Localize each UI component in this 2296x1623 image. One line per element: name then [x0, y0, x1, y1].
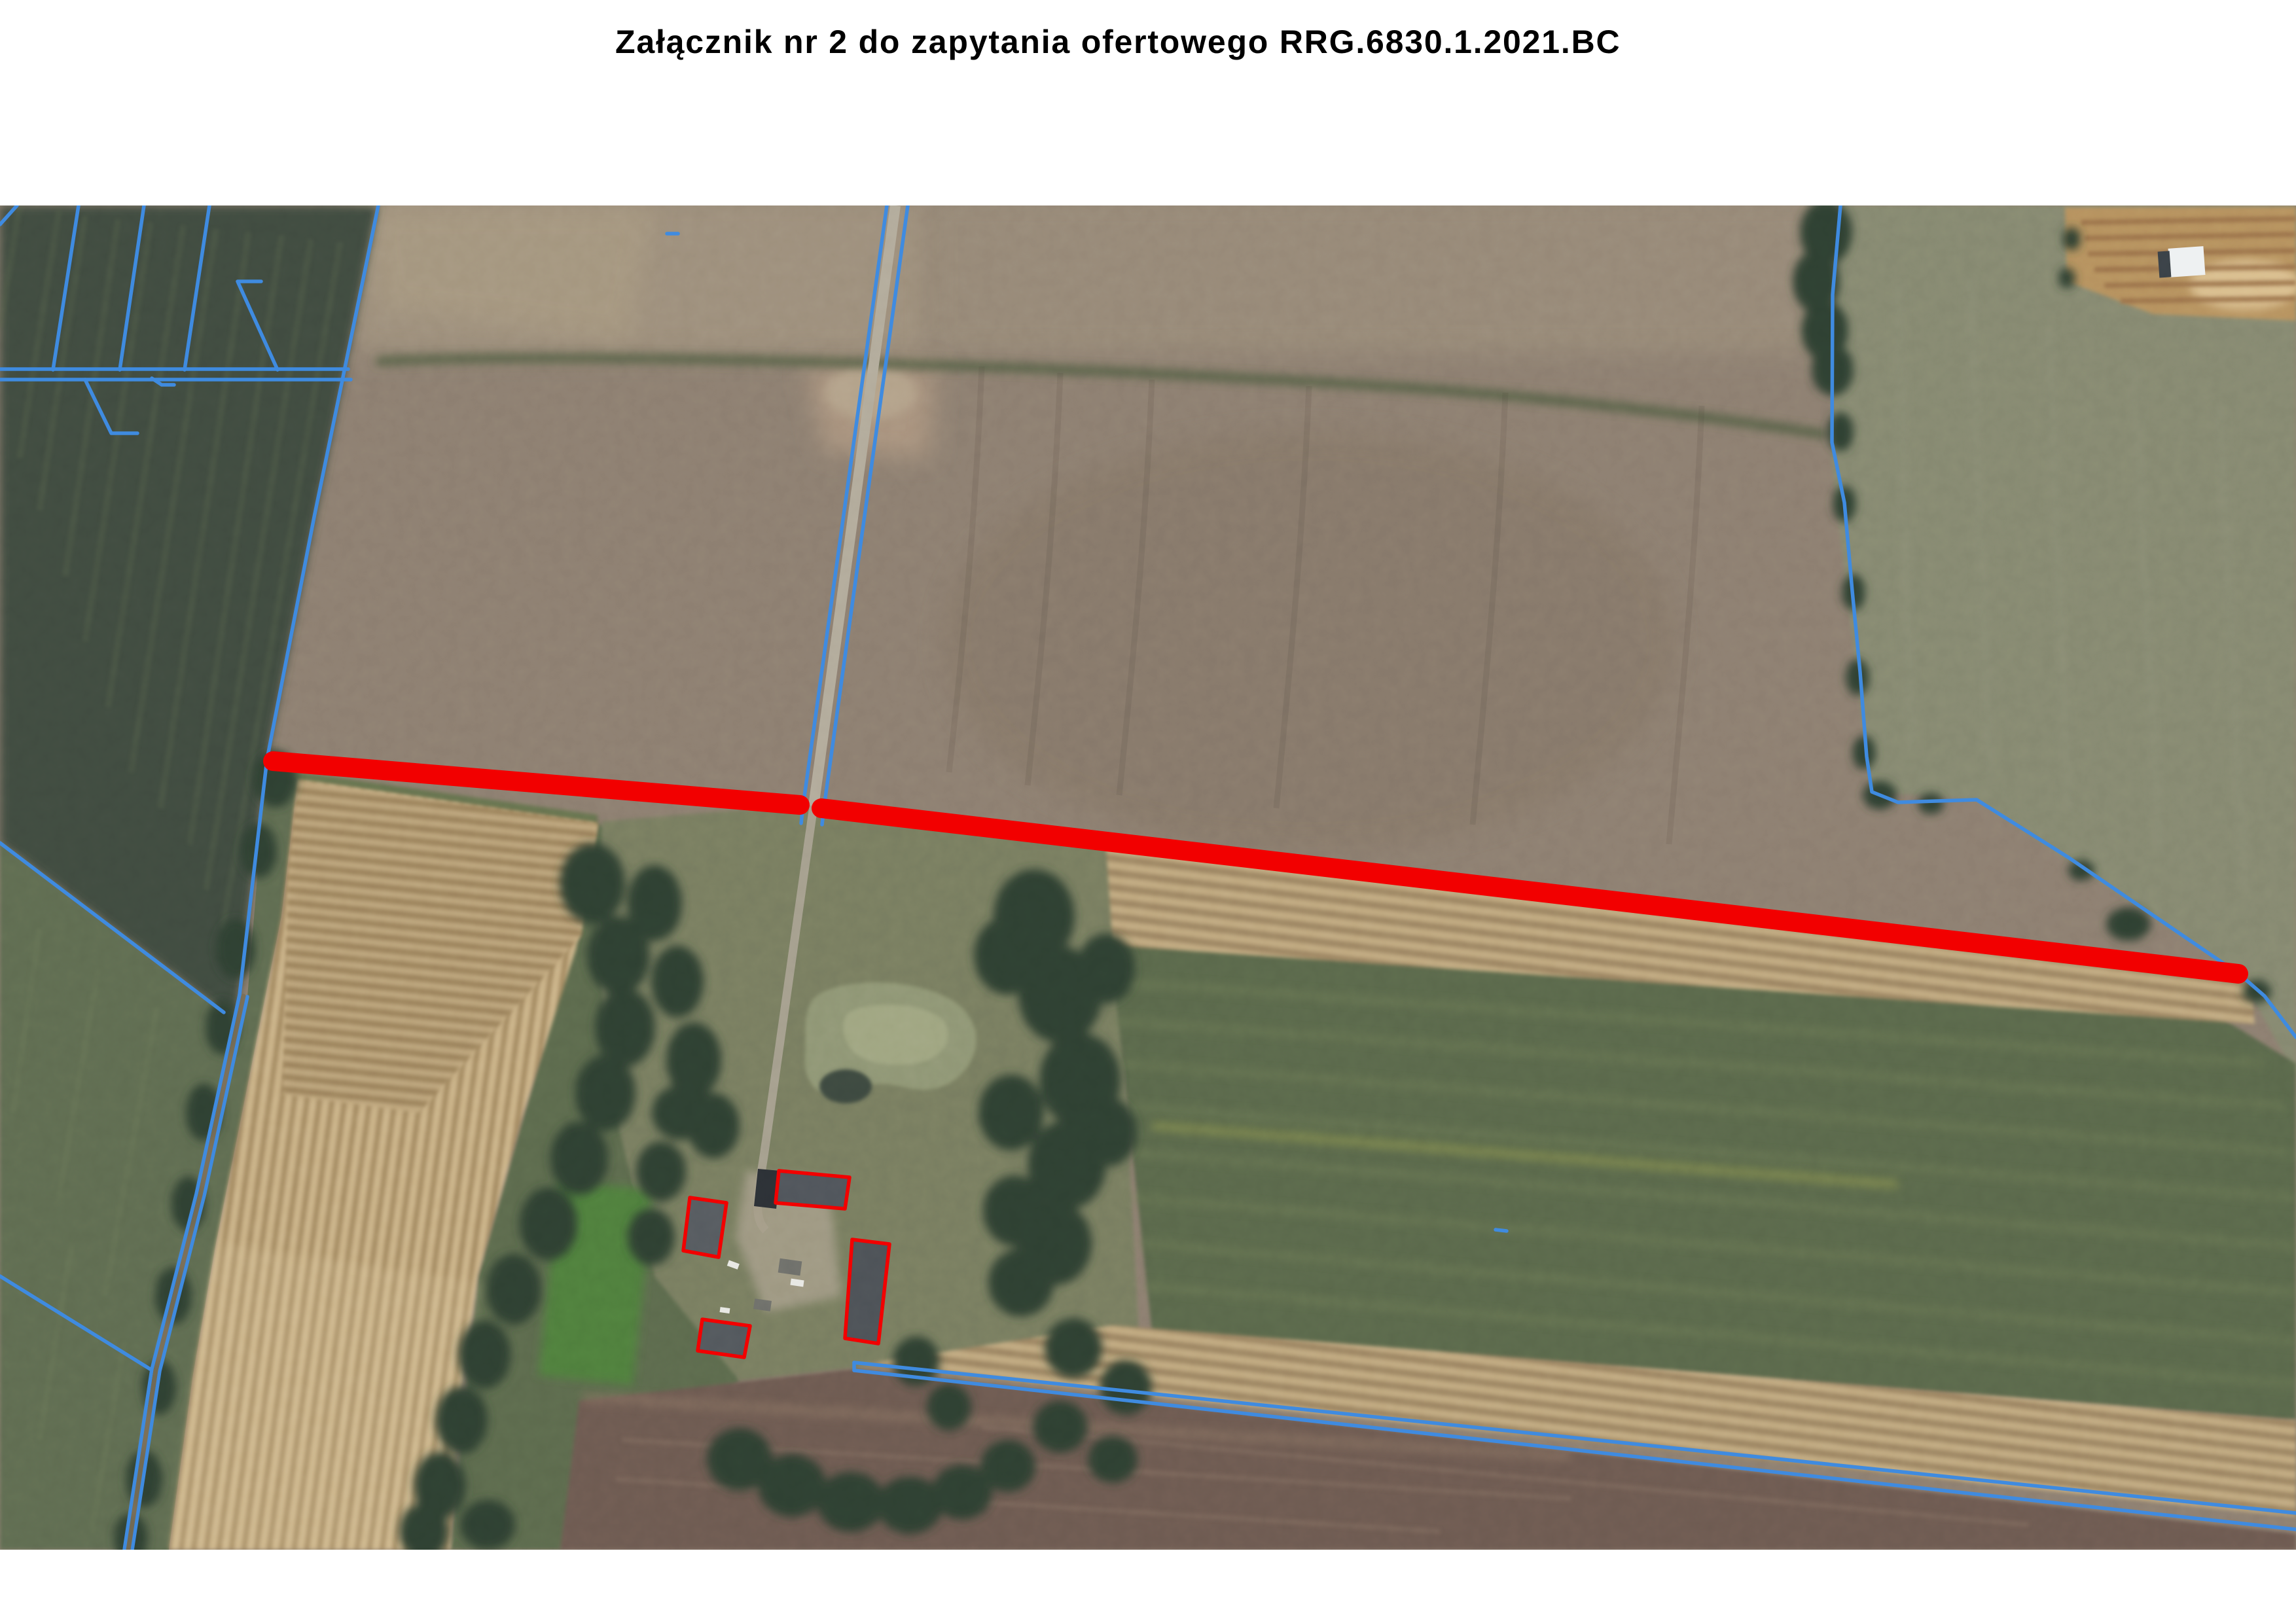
svg-text:Załącznik nr 2 do zapytania of: Załącznik nr 2 do zapytania ofertowego R…	[615, 24, 1621, 60]
